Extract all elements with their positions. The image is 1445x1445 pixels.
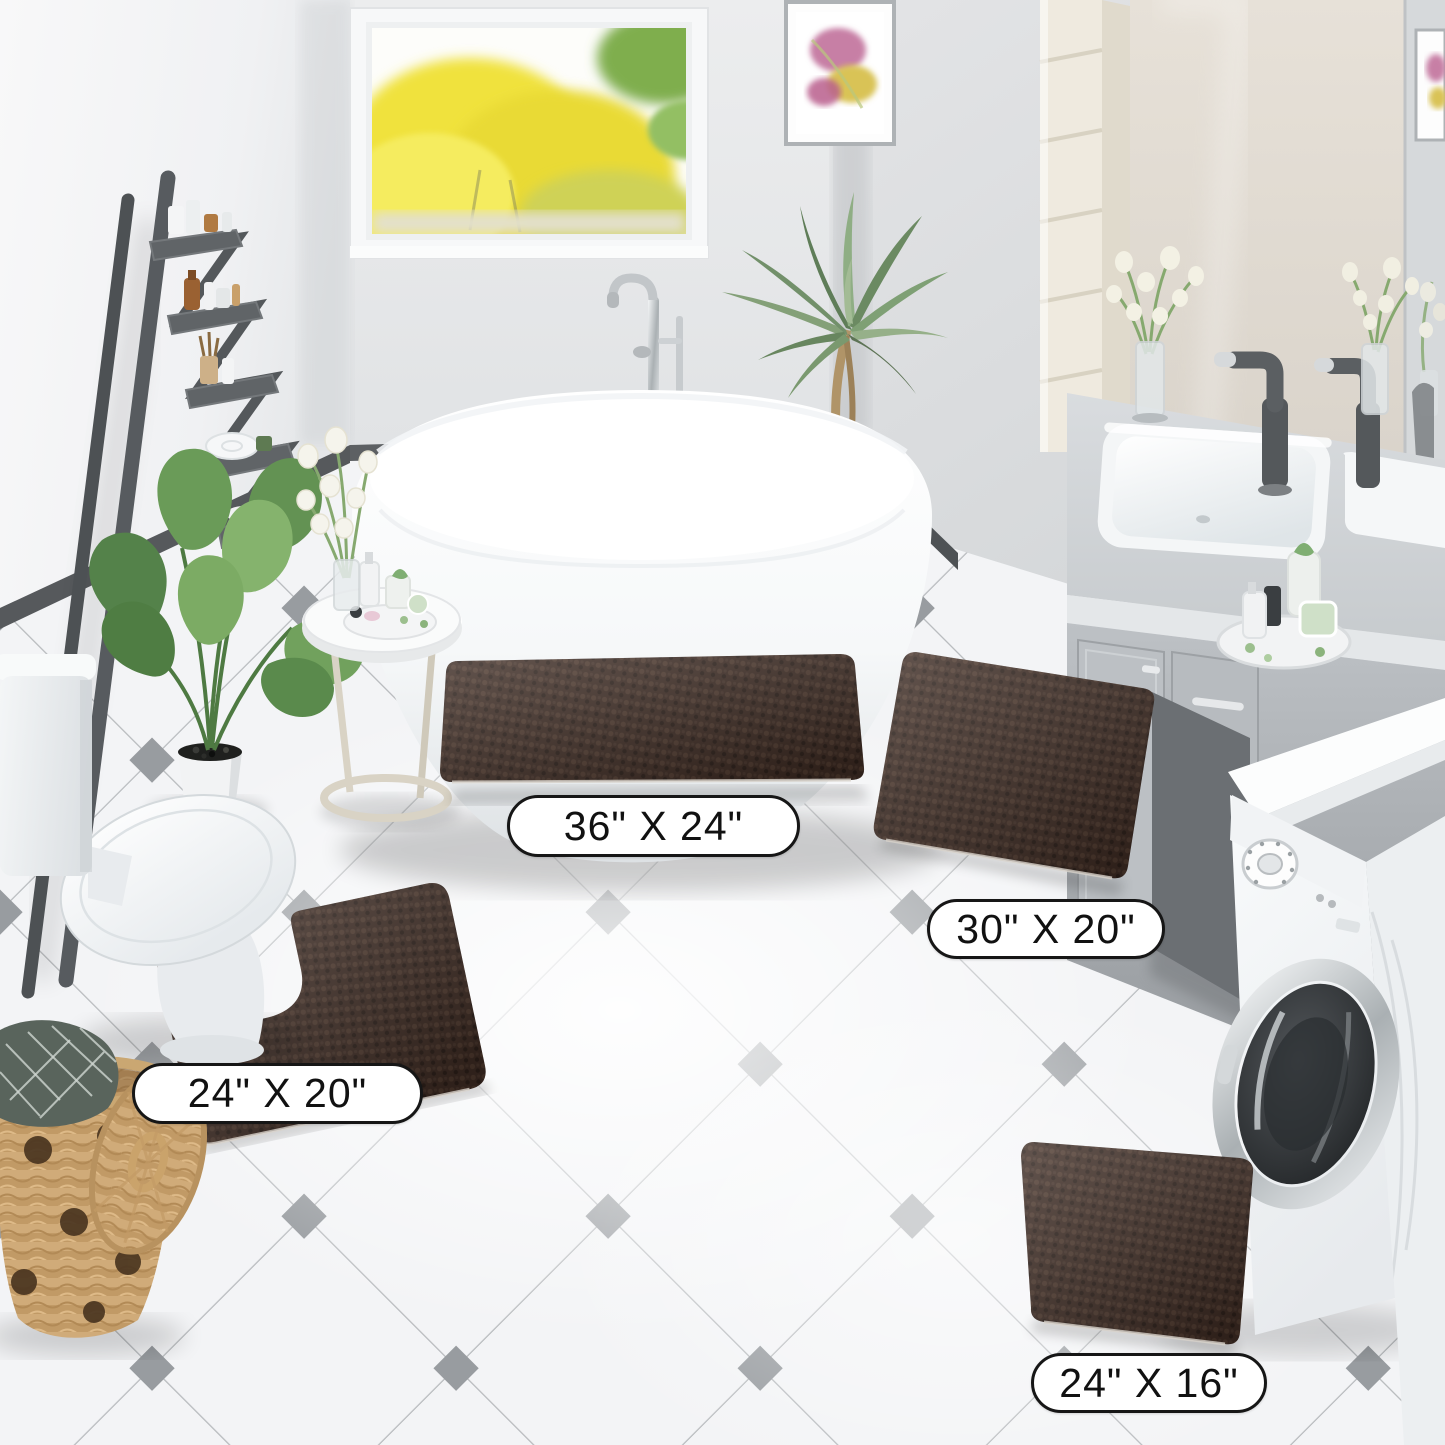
mirror-art-reflection — [1416, 30, 1445, 140]
bathroom-rug-product-photo: 36" X 24" 30" X 20" 24" X 20" 24" X 16" — [0, 0, 1445, 1445]
window — [345, 8, 732, 260]
rug-36x24 — [440, 654, 870, 804]
wall-art — [786, 2, 894, 144]
washer-dial — [1243, 840, 1297, 888]
size-label-24x16: 24" X 16" — [1031, 1353, 1267, 1413]
size-label-24x20: 24" X 20" — [132, 1063, 423, 1124]
sink — [1096, 422, 1332, 562]
mirror — [1405, 0, 1445, 520]
tall-cabinet — [1040, 0, 1130, 452]
window-view-trees — [345, 12, 732, 260]
rug-24x16 — [1021, 1142, 1253, 1356]
bathroom-scene — [0, 0, 1445, 1445]
size-label-36x24: 36" X 24" — [507, 795, 800, 857]
size-label-30x20: 30" X 20" — [927, 899, 1165, 959]
